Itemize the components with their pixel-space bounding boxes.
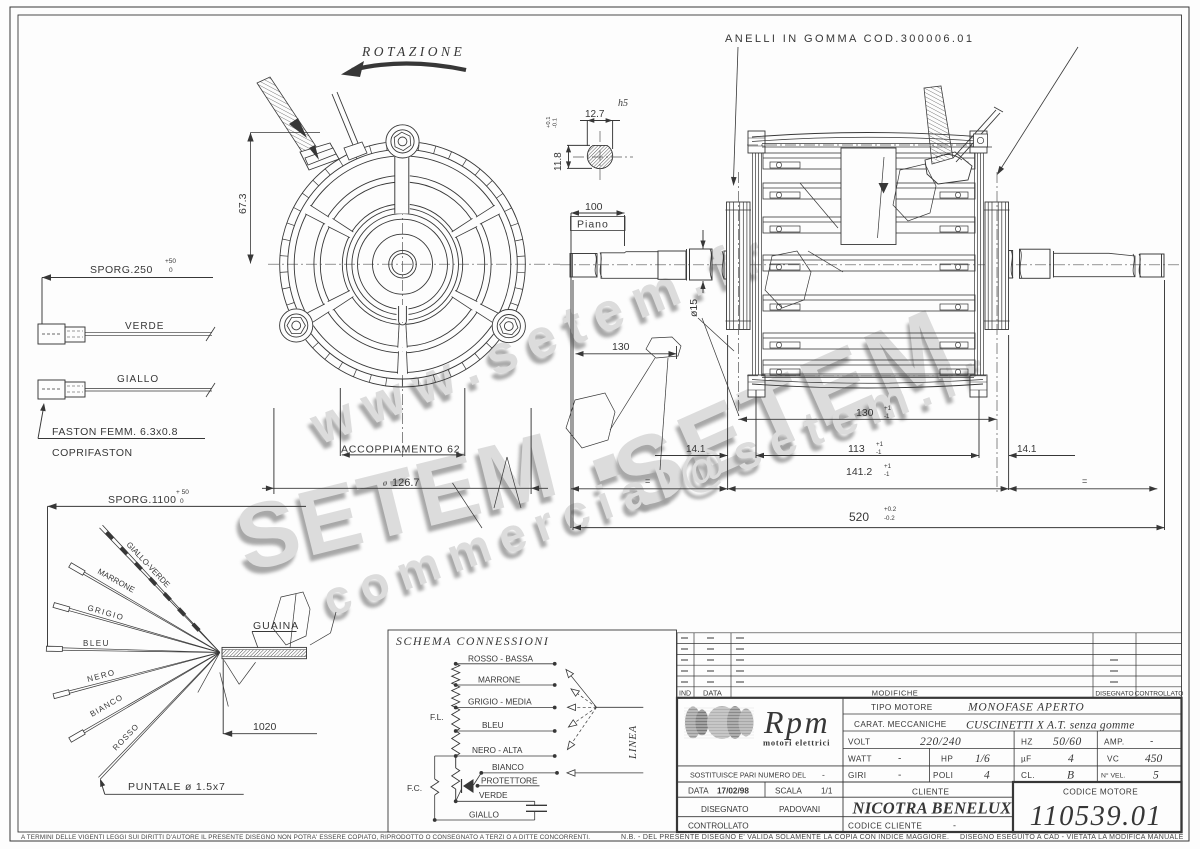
svg-text:0: 0 [169, 267, 173, 274]
svg-text:NERO - ALTA: NERO - ALTA [472, 745, 523, 755]
svg-text:FASTON FEMM. 6.3x0.8: FASTON FEMM. 6.3x0.8 [52, 426, 178, 438]
svg-text:+0.2: +0.2 [884, 506, 897, 513]
svg-text:-: - [898, 754, 901, 765]
svg-text:50/60: 50/60 [1053, 736, 1082, 748]
svg-text:CONTROLLATO: CONTROLLATO [688, 822, 749, 831]
svg-text:12.7: 12.7 [585, 109, 605, 120]
svg-text:=: = [645, 476, 650, 486]
svg-text:AMP.: AMP. [1104, 738, 1125, 747]
svg-text:+1: +1 [876, 441, 884, 448]
svg-text:DISEGNO ESEGUITO A CAD - VIETA: DISEGNO ESEGUITO A CAD - VIETATA LA MODI… [960, 834, 1184, 841]
svg-text:1/1: 1/1 [821, 787, 833, 796]
svg-text:N° VEL.: N° VEL. [1101, 772, 1125, 780]
svg-text:B: B [1067, 770, 1074, 782]
svg-text:GIALLO: GIALLO [117, 374, 159, 385]
svg-text:Rpm: Rpm [763, 704, 830, 740]
svg-text:141.2: 141.2 [846, 466, 872, 478]
svg-text:IND: IND [679, 690, 691, 697]
svg-text:motori elettrici: motori elettrici [763, 738, 830, 748]
svg-text:CL.: CL. [1021, 771, 1035, 780]
svg-text:Piano: Piano [577, 219, 609, 231]
svg-text:DISEGNATO: DISEGNATO [1095, 690, 1133, 697]
svg-text:ACCOPPIAMENTO 62: ACCOPPIAMENTO 62 [341, 444, 460, 456]
svg-text:+1: +1 [884, 463, 892, 470]
svg-text:100: 100 [585, 201, 603, 213]
svg-text:ø15: ø15 [688, 299, 700, 317]
svg-text:LINEA: LINEA [628, 725, 639, 760]
svg-text:DATA: DATA [703, 688, 722, 697]
svg-text:126.7: 126.7 [392, 477, 420, 489]
svg-text:SPORG.1100: SPORG.1100 [108, 494, 176, 506]
svg-text:VC: VC [1107, 755, 1119, 764]
svg-text:110539.01: 110539.01 [1030, 801, 1163, 832]
svg-text:130: 130 [612, 341, 630, 353]
svg-text:-0.2: -0.2 [884, 515, 895, 522]
svg-text:ROSSO - BASSA: ROSSO - BASSA [468, 654, 533, 664]
svg-text:COPRIFASTON: COPRIFASTON [52, 447, 133, 459]
svg-text:MONOFASE APERTO: MONOFASE APERTO [967, 702, 1084, 714]
svg-text:CARAT. MECCANICHE: CARAT. MECCANICHE [854, 720, 947, 729]
svg-text:14.1: 14.1 [686, 444, 706, 455]
svg-text:N.B. - DEL PRESENTE DISEGNO E': N.B. - DEL PRESENTE DISEGNO E' VALIDA SO… [621, 834, 949, 841]
svg-text:-: - [953, 821, 956, 831]
svg-text:11.8: 11.8 [553, 152, 564, 171]
svg-text:ROTAZIONE: ROTAZIONE [361, 44, 465, 59]
svg-text:ANELLI IN GOMMA COD.300006.01: ANELLI IN GOMMA COD.300006.01 [725, 33, 974, 45]
svg-text:4: 4 [1068, 753, 1074, 765]
svg-text:=: = [1082, 476, 1087, 486]
svg-text:PADOVANI: PADOVANI [779, 805, 820, 814]
svg-text:POLI: POLI [933, 771, 953, 780]
svg-text:+50: +50 [165, 258, 176, 265]
svg-text:DISEGNATO: DISEGNATO [701, 805, 748, 814]
svg-text:4: 4 [984, 770, 990, 782]
svg-text:PROTETTORE: PROTETTORE [481, 776, 538, 786]
svg-text:BIANCO: BIANCO [492, 762, 524, 772]
svg-text:SOSTITUISCE PARI NUMERO DEL: SOSTITUISCE PARI NUMERO DEL [690, 771, 806, 780]
svg-text:GIRI: GIRI [848, 771, 866, 780]
svg-text:SCHEMA CONNESSIONI: SCHEMA CONNESSIONI [396, 634, 549, 648]
svg-text:CLIENTE: CLIENTE [912, 788, 950, 797]
svg-text:450: 450 [1145, 753, 1163, 765]
svg-text:-1: -1 [884, 471, 890, 478]
svg-text:A TERMINI DELLE VIGENTI LEGGI: A TERMINI DELLE VIGENTI LEGGI SUI DIRITT… [21, 834, 590, 841]
svg-text:BLEU: BLEU [482, 720, 504, 730]
svg-text:NICOTRA BENELUX: NICOTRA BENELUX [852, 799, 1013, 818]
svg-text:67.3: 67.3 [237, 193, 249, 214]
svg-text:1020: 1020 [253, 721, 277, 733]
svg-text:TIPO MOTORE: TIPO MOTORE [871, 703, 933, 712]
svg-text:VERDE: VERDE [125, 321, 164, 332]
svg-text:1/6: 1/6 [975, 753, 990, 765]
svg-text:µF: µF [1021, 755, 1032, 764]
svg-text:-1: -1 [876, 449, 882, 456]
svg-text:VERDE: VERDE [479, 790, 508, 800]
svg-text:CUSCINETTI X A.T. senza gomme: CUSCINETTI X A.T. senza gomme [966, 720, 1135, 732]
svg-text:SPORG.250: SPORG.250 [90, 264, 153, 276]
svg-text:-: - [822, 770, 825, 780]
svg-text:+ 50: + 50 [176, 489, 189, 496]
svg-text:DATA: DATA [688, 787, 709, 796]
svg-text:220/240: 220/240 [920, 736, 961, 748]
svg-text:CONTROLLATO: CONTROLLATO [1135, 690, 1184, 697]
svg-text:+0.1: +0.1 [546, 117, 552, 128]
svg-text:14.1: 14.1 [1017, 444, 1037, 455]
svg-text:h5: h5 [618, 98, 628, 109]
svg-text:VOLT: VOLT [848, 738, 870, 747]
svg-text:MARRONE: MARRONE [478, 675, 521, 685]
svg-text:BLEU: BLEU [83, 639, 110, 648]
svg-text:WATT: WATT [848, 755, 872, 764]
svg-text:-: - [1150, 737, 1153, 748]
svg-text:-: - [898, 770, 901, 781]
svg-text:CODICE MOTORE: CODICE MOTORE [1063, 788, 1138, 797]
svg-text:CODICE CLIENTE: CODICE CLIENTE [848, 822, 922, 831]
svg-text:130: 130 [856, 407, 874, 419]
svg-text:0: 0 [180, 498, 184, 505]
svg-text:GIALLO: GIALLO [469, 810, 500, 820]
svg-text:F.L.: F.L. [430, 712, 444, 722]
svg-text:F.C.: F.C. [407, 783, 422, 793]
svg-text:5: 5 [1153, 770, 1159, 782]
svg-text:113: 113 [848, 443, 865, 455]
svg-text:GRIGIO - MEDIA: GRIGIO - MEDIA [468, 697, 532, 707]
svg-text:MODIFICHE: MODIFICHE [872, 688, 919, 697]
svg-text:+1: +1 [884, 405, 892, 412]
svg-text:PUNTALE ø 1.5x7: PUNTALE ø 1.5x7 [128, 781, 226, 793]
svg-text:17/02/98: 17/02/98 [717, 787, 749, 796]
svg-text:HP: HP [941, 755, 953, 764]
svg-text:SCALA: SCALA [775, 787, 802, 796]
svg-text:HZ: HZ [1021, 738, 1033, 747]
svg-text:-0.1: -0.1 [553, 118, 559, 128]
svg-text:520: 520 [849, 510, 869, 524]
